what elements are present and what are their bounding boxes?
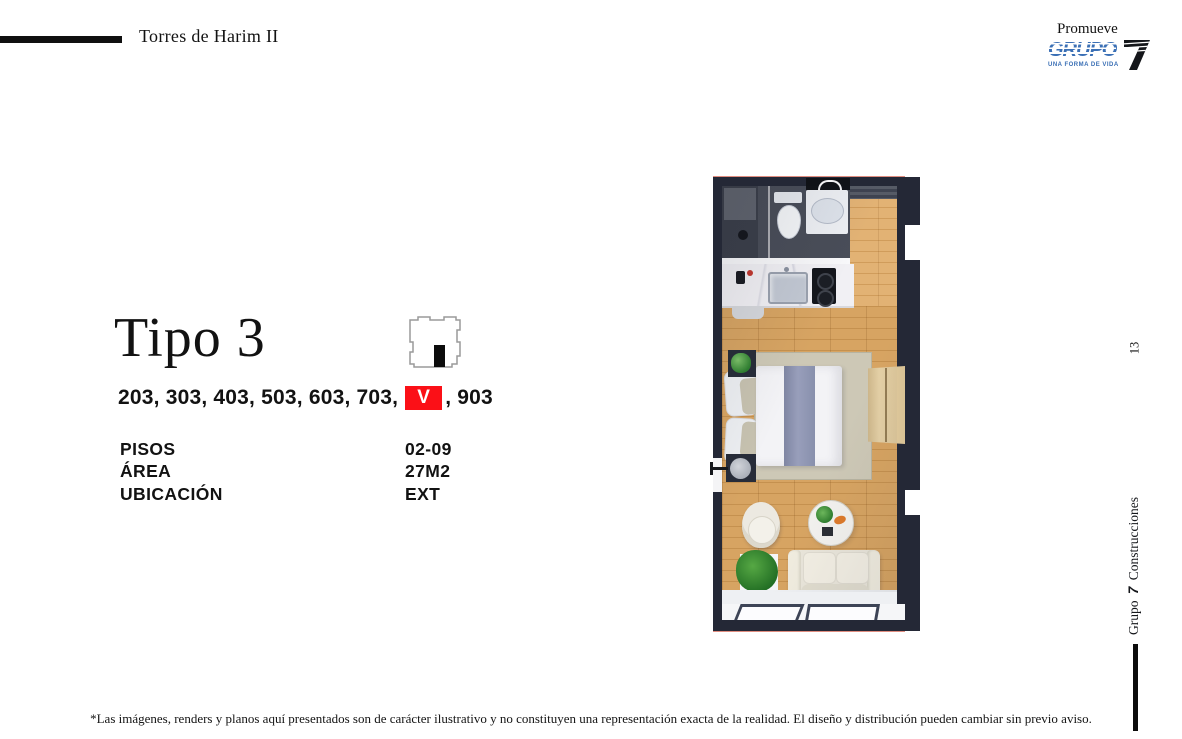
grupo-wordmark: GRUPO UNA FORMA DE VIDA	[1048, 40, 1119, 68]
cooktop-burner	[817, 273, 834, 290]
brochure-page: Torres de Harim II Promueve GRUPO UNA FO…	[0, 0, 1182, 739]
bathroom-shelf	[724, 188, 756, 220]
armchair-seat	[748, 516, 776, 544]
kitchen-stool	[732, 306, 764, 319]
counter-item	[747, 270, 753, 276]
throw-blanket	[784, 366, 815, 466]
brand-seven-icon: 7	[1126, 587, 1141, 595]
brand-prefix: Grupo	[1126, 601, 1141, 636]
grupo7-logo: GRUPO UNA FORMA DE VIDA	[1048, 40, 1158, 74]
vertical-brand-text: Grupo 7 Construcciones	[1126, 497, 1142, 635]
floor-lamp-pole	[710, 462, 713, 475]
cooktop-burner	[817, 290, 834, 307]
floor-plant	[736, 550, 778, 592]
spec-value: EXT	[405, 484, 440, 505]
promoter-label: Promueve	[1057, 21, 1118, 38]
building-footprint-icon	[404, 312, 466, 375]
spec-row-pisos: PISOS 02-09	[120, 438, 452, 461]
unit-numbers: 203, 303, 403, 503, 603, 703, V , 903	[118, 386, 493, 410]
unit-numbers-suffix: , 903	[445, 386, 493, 410]
counter-bottle	[736, 271, 745, 284]
header-rule	[0, 36, 122, 43]
sold-badge: V	[405, 386, 442, 410]
brand-suffix: Construcciones	[1126, 497, 1141, 580]
bathroom-sink	[811, 198, 844, 224]
grupo-word: GRUPO	[1048, 40, 1116, 60]
table-plant	[816, 506, 833, 523]
spec-row-ubicacion: UBICACIÓN EXT	[120, 483, 452, 506]
towel-rack	[818, 180, 842, 191]
round-table	[808, 500, 854, 546]
disclaimer-text: *Las imágenes, renders y planos aquí pre…	[0, 711, 1182, 727]
shower-glass-partition	[768, 186, 770, 258]
grupo-tagline: UNA FORMA DE VIDA	[1048, 62, 1119, 68]
balcony-sill	[722, 590, 897, 604]
wall-pillar	[905, 515, 920, 631]
sofa-cushion	[836, 552, 869, 584]
wall-pillar	[905, 260, 920, 490]
wall-pillar	[905, 177, 920, 225]
floor-lamp	[711, 467, 728, 470]
kitchen-sink	[768, 272, 808, 304]
unit-specs: PISOS 02-09 ÁREA 27M2 UBICACIÓN EXT	[120, 438, 452, 506]
project-title: Torres de Harim II	[139, 26, 279, 47]
floorplan-render	[710, 172, 925, 638]
spec-row-area: ÁREA 27M2	[120, 461, 452, 484]
spec-value: 27M2	[405, 461, 450, 482]
entry-door	[850, 186, 897, 199]
table-book	[822, 527, 833, 536]
spec-value: 02-09	[405, 439, 452, 460]
unit-type-title: Tipo 3	[114, 306, 266, 370]
toilet-tank	[774, 192, 802, 203]
table-lamp	[730, 458, 751, 479]
page-number: 13	[1128, 342, 1143, 355]
unit-numbers-prefix: 203, 303, 403, 503, 603, 703,	[118, 386, 398, 410]
shower-drain	[738, 230, 748, 240]
wardrobe-door-seam	[885, 368, 887, 442]
spec-label: PISOS	[120, 439, 405, 460]
sofa-cushion	[803, 552, 836, 584]
entry-corridor-floor	[848, 186, 897, 306]
spec-label: UBICACIÓN	[120, 484, 405, 505]
kitchen-faucet	[784, 267, 789, 272]
spec-label: ÁREA	[120, 461, 405, 482]
nightstand-plant	[731, 353, 751, 373]
unit-position-marker	[434, 345, 445, 367]
wall-notch	[713, 458, 722, 492]
seven-icon	[1124, 40, 1150, 75]
window-wall	[713, 620, 905, 631]
